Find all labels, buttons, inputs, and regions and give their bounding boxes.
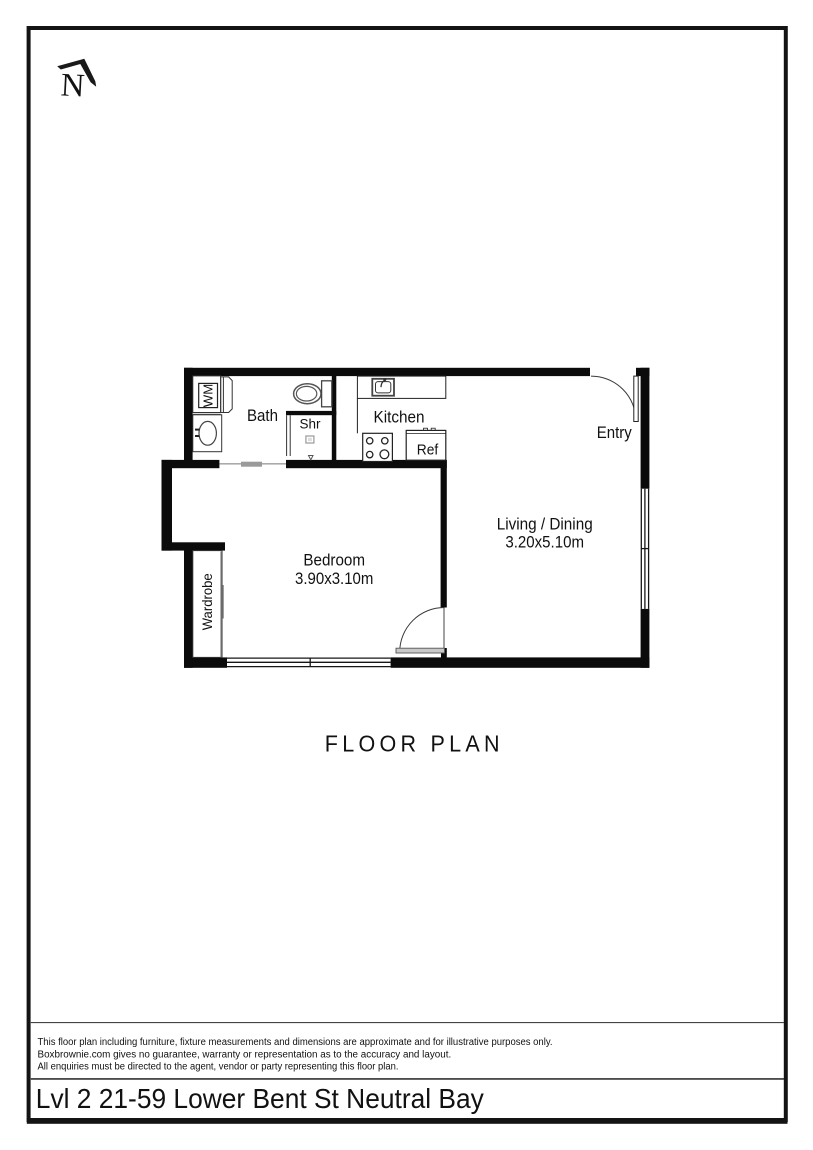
svg-text:Lvl 2 21-59 Lower Bent St Neut: Lvl 2 21-59 Lower Bent St Neutral Bay	[36, 1083, 484, 1114]
svg-text:Entry: Entry	[597, 423, 633, 442]
svg-text:This floor plan including furn: This floor plan including furniture, fix…	[38, 1037, 553, 1048]
svg-text:Boxbrownie.com gives no guaran: Boxbrownie.com gives no guarantee, warra…	[38, 1049, 452, 1060]
svg-text:Bedroom: Bedroom	[303, 550, 365, 569]
svg-text:Wardrobe: Wardrobe	[200, 573, 215, 630]
svg-text:FLOOR PLAN: FLOOR PLAN	[325, 730, 504, 756]
svg-text:Shr: Shr	[300, 415, 321, 431]
svg-text:N: N	[60, 67, 86, 104]
svg-text:3.90x3.10m: 3.90x3.10m	[295, 569, 373, 588]
svg-text:WM: WM	[201, 384, 216, 408]
svg-text:All enquiries must be directed: All enquiries must be directed to the ag…	[38, 1061, 399, 1072]
svg-text:3.20x5.10m: 3.20x5.10m	[505, 533, 584, 552]
svg-text:Ref: Ref	[417, 442, 439, 459]
svg-text:Bath: Bath	[247, 406, 278, 425]
svg-text:Living / Dining: Living / Dining	[497, 514, 593, 533]
svg-text:Kitchen: Kitchen	[374, 408, 425, 427]
